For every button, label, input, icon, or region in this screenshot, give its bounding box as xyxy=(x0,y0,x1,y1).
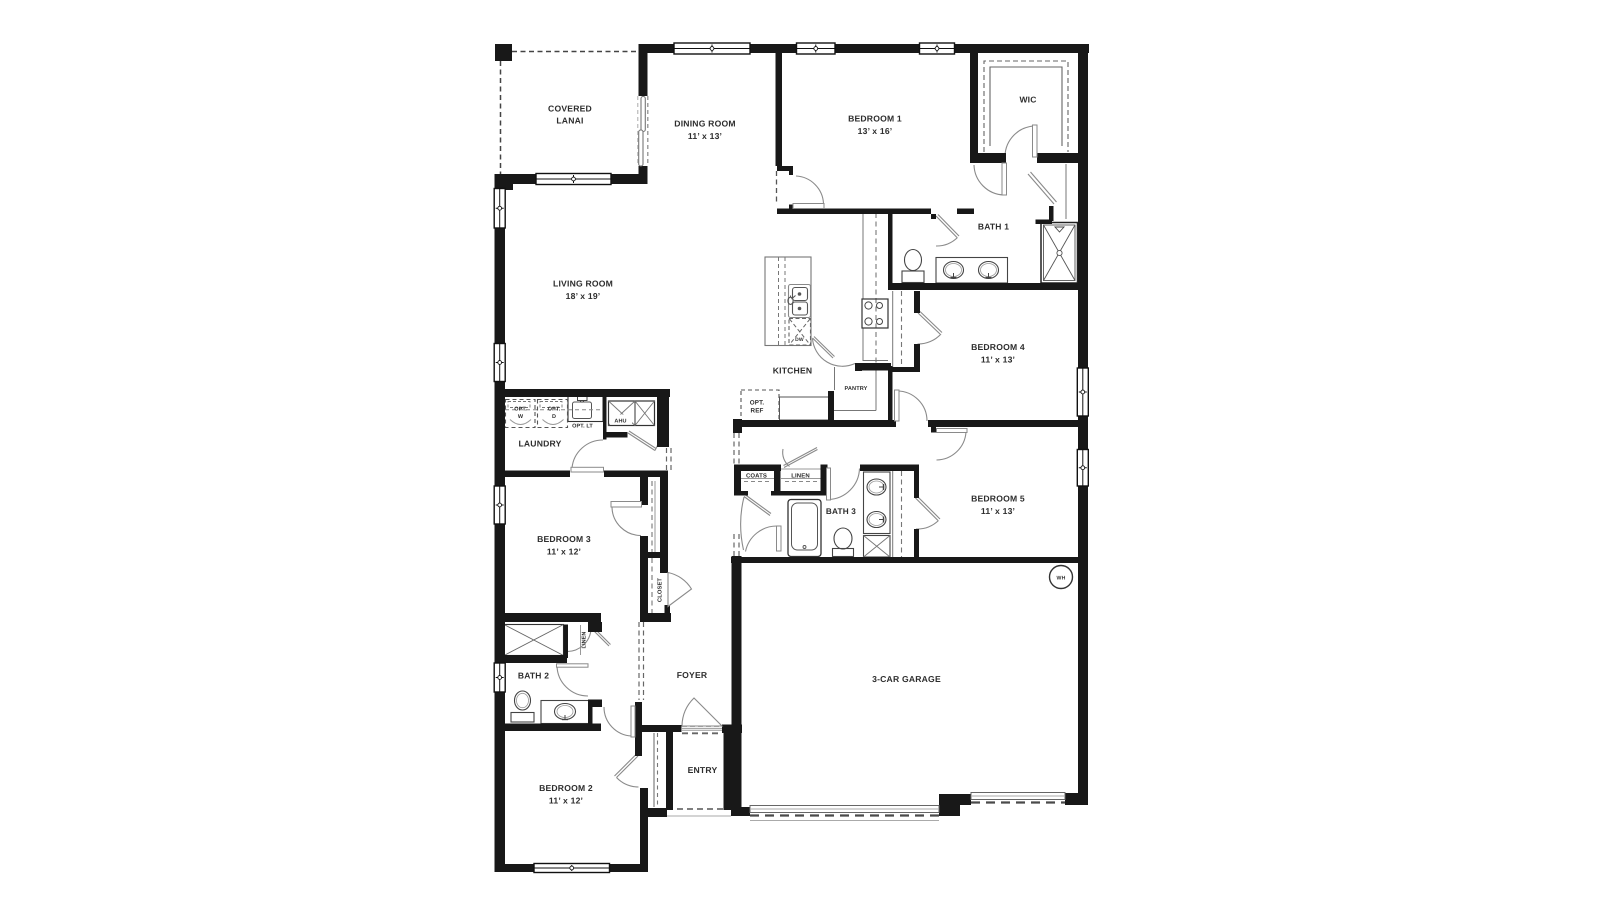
svg-text:BATH 1: BATH 1 xyxy=(978,222,1009,232)
svg-text:DW: DW xyxy=(795,337,804,343)
svg-text:COVERED: COVERED xyxy=(548,104,592,114)
svg-text:FOYER: FOYER xyxy=(677,670,708,680)
svg-text:PANTRY: PANTRY xyxy=(845,386,868,392)
svg-text:DINING ROOM: DINING ROOM xyxy=(674,119,735,129)
svg-text:LINEN: LINEN xyxy=(582,632,588,649)
svg-text:11’ x 12’: 11’ x 12’ xyxy=(549,796,583,806)
svg-text:11’ x 13’: 11’ x 13’ xyxy=(981,506,1015,516)
svg-text:BEDROOM 1: BEDROOM 1 xyxy=(848,114,902,124)
svg-text:11’ x 13’: 11’ x 13’ xyxy=(981,355,1015,365)
svg-text:W: W xyxy=(518,414,524,420)
svg-text:ENTRY: ENTRY xyxy=(688,765,718,775)
svg-text:LIVING ROOM: LIVING ROOM xyxy=(553,279,613,289)
svg-text:D: D xyxy=(552,414,556,420)
svg-text:REF: REF xyxy=(751,408,764,415)
svg-text:OPT.: OPT. xyxy=(548,407,561,413)
svg-text:3-CAR GARAGE: 3-CAR GARAGE xyxy=(872,674,941,684)
svg-text:18’ x 19’: 18’ x 19’ xyxy=(566,291,601,301)
svg-text:BEDROOM 2: BEDROOM 2 xyxy=(539,783,593,793)
svg-text:BATH 2: BATH 2 xyxy=(518,671,549,681)
svg-text:WH: WH xyxy=(1056,575,1065,581)
svg-text:AHU: AHU xyxy=(614,419,626,425)
svg-text:OPT.: OPT. xyxy=(750,400,765,407)
svg-text:11’ x 13’: 11’ x 13’ xyxy=(688,131,722,141)
svg-text:LAUNDRY: LAUNDRY xyxy=(518,439,561,449)
svg-text:11’ x 12’: 11’ x 12’ xyxy=(547,547,581,557)
svg-text:CLOSET: CLOSET xyxy=(657,578,664,602)
svg-text:LINEN: LINEN xyxy=(791,473,810,480)
svg-text:BEDROOM 3: BEDROOM 3 xyxy=(537,534,591,544)
svg-text:COATS: COATS xyxy=(746,473,767,480)
svg-text:LANAI: LANAI xyxy=(556,116,583,126)
svg-text:OPT.: OPT. xyxy=(514,407,527,413)
svg-text:OPT. LT: OPT. LT xyxy=(572,424,593,430)
svg-text:KITCHEN: KITCHEN xyxy=(773,366,813,376)
svg-text:BEDROOM 4: BEDROOM 4 xyxy=(971,342,1025,352)
svg-text:BATH 3: BATH 3 xyxy=(826,507,856,516)
svg-text:BEDROOM 5: BEDROOM 5 xyxy=(971,494,1025,504)
svg-text:WIC: WIC xyxy=(1019,95,1036,105)
svg-text:13’ x 16’: 13’ x 16’ xyxy=(858,126,893,136)
